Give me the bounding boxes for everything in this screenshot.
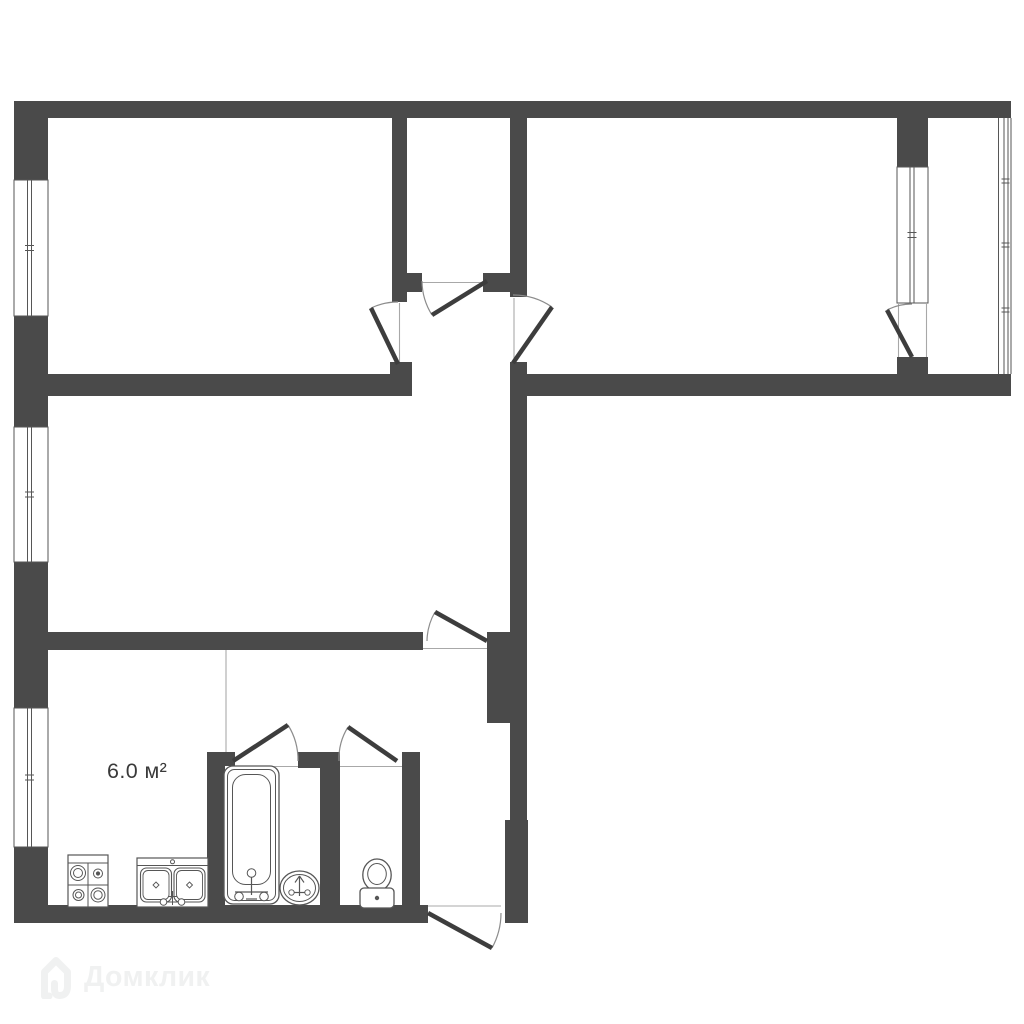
kitchen-sink-basin bbox=[174, 868, 205, 902]
wall-room1-door-jamb bbox=[390, 362, 412, 396]
wall-right-wall-lower bbox=[505, 820, 528, 923]
wall-balcony-partition-stub bbox=[897, 357, 928, 396]
wall-bathroom-left-wall bbox=[207, 752, 225, 908]
toilet-door-swing-arc bbox=[339, 727, 348, 761]
wall-toilet-right-wall bbox=[402, 752, 420, 908]
wall-mid-wall-left bbox=[48, 374, 390, 396]
wall-hall-corner-block bbox=[487, 632, 510, 723]
balcony-door-swing-arc bbox=[887, 304, 912, 310]
floorplan-page: 6.0 м² Домклик bbox=[0, 0, 1024, 1024]
kitchen-sink-tap-hole bbox=[171, 860, 175, 864]
wall-mid-wall-right bbox=[527, 374, 1011, 396]
domclick-watermark-text: Домклик bbox=[84, 955, 210, 999]
domclick-logo-icon bbox=[36, 955, 76, 999]
living-room-door-leaf bbox=[435, 612, 487, 641]
bathroom-door-leaf bbox=[233, 725, 288, 761]
bathroom-door-swing-arc bbox=[288, 725, 298, 761]
kitchen-sink-basin bbox=[141, 868, 172, 902]
wall-left-wall-a bbox=[14, 101, 48, 180]
room1-door-swing-arc bbox=[371, 302, 398, 308]
floorplan-drawing bbox=[0, 0, 1024, 1024]
wall-vestibule-south-jamb-left bbox=[407, 273, 422, 292]
domclick-house-glyph bbox=[45, 961, 68, 997]
wall-left-wall-c bbox=[14, 562, 48, 708]
toilet-button bbox=[375, 896, 378, 899]
wall-vestibule-right-wall bbox=[510, 118, 527, 297]
wall-balcony-partition-top bbox=[897, 118, 928, 167]
wall-vestibule-left-wall bbox=[392, 118, 407, 302]
wall-right-wall-upper bbox=[510, 396, 527, 820]
room2-door-leaf bbox=[513, 307, 552, 363]
washbasin-tap-knob bbox=[289, 890, 294, 895]
wall-bath-toilet-divider-wall bbox=[320, 752, 340, 908]
kitchen-sink-faucet-knob bbox=[178, 899, 185, 906]
wall-top-wall bbox=[14, 101, 1011, 118]
wall-left-wall-b bbox=[14, 316, 48, 427]
kitchen-area-label: 6.0 м² bbox=[107, 759, 167, 784]
balcony-door-leaf bbox=[887, 310, 912, 357]
vestibule-door-swing-arc bbox=[422, 281, 432, 315]
washbasin-tap-knob bbox=[305, 890, 310, 895]
vestibule-door-leaf bbox=[432, 281, 487, 315]
kitchen-sink-faucet-knob bbox=[160, 899, 167, 906]
entrance-door-swing-arc bbox=[492, 913, 501, 948]
domclick-watermark: Домклик bbox=[36, 955, 210, 999]
wall-vestibule-right-wall-lower bbox=[510, 362, 527, 396]
living-room-door-swing-arc bbox=[427, 612, 435, 641]
bathtub-faucet-knob bbox=[260, 892, 269, 901]
window-balcony-partition bbox=[897, 167, 928, 303]
toilet-door-leaf bbox=[348, 727, 397, 761]
stove-burner bbox=[96, 872, 99, 875]
room1-door-leaf bbox=[371, 308, 398, 364]
bathtub-drain bbox=[247, 869, 256, 878]
wall-living-room-south-wall bbox=[48, 632, 423, 650]
bathtub-faucet-knob bbox=[235, 892, 244, 901]
entrance-door-leaf bbox=[428, 913, 492, 948]
